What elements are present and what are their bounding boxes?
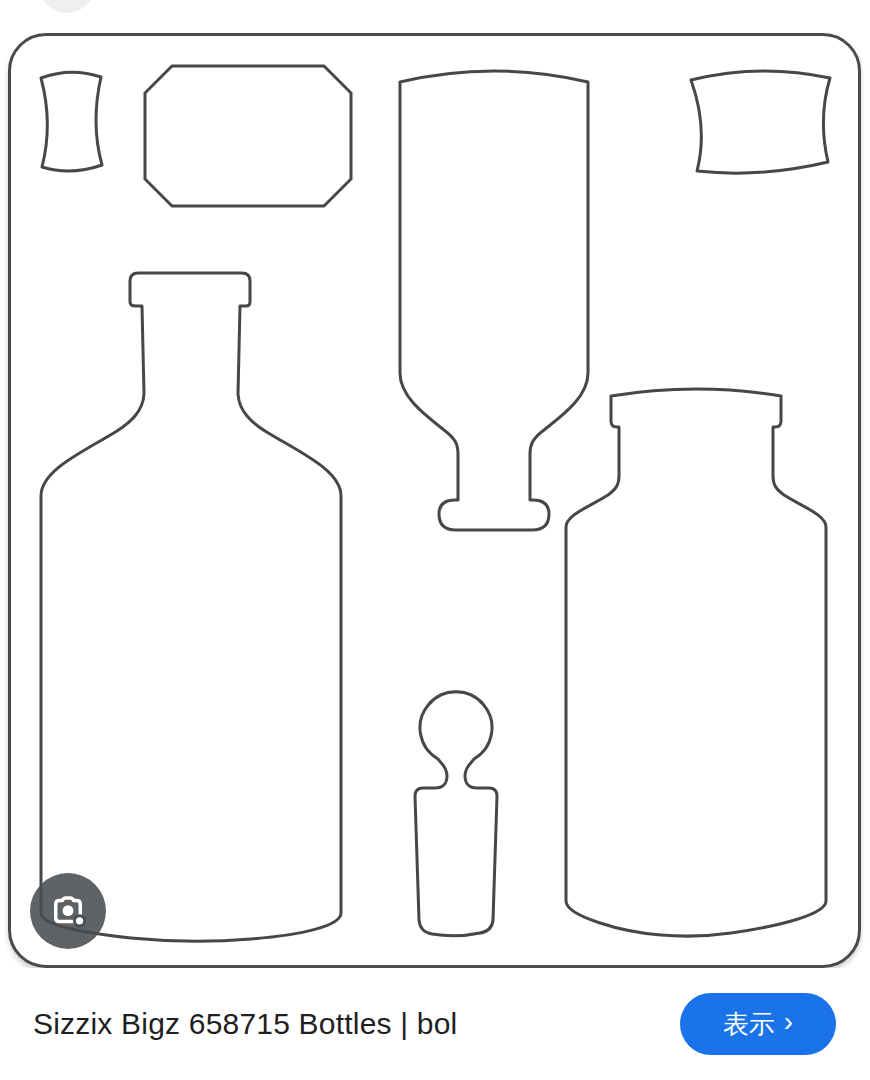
- result-image-card[interactable]: [8, 33, 861, 968]
- google-lens-button[interactable]: [30, 873, 106, 949]
- scroll-chip-remnant: [38, 0, 96, 13]
- visit-button-label: 表示: [723, 1007, 775, 1042]
- google-lens-camera-icon: [47, 890, 89, 932]
- die-shape-large-bottle: [41, 273, 341, 941]
- result-footer: Sizzix Bigz 658715 Bottles | bol 表示 ›: [0, 968, 870, 1080]
- die-shape-small-cork: [41, 72, 102, 171]
- result-title[interactable]: Sizzix Bigz 658715 Bottles | bol: [33, 1007, 457, 1041]
- die-shape-wide-cork: [691, 71, 830, 173]
- chevron-right-icon: ›: [784, 1008, 793, 1036]
- die-shape-ball-stopper: [415, 692, 497, 936]
- visit-button[interactable]: 表示 ›: [680, 993, 836, 1055]
- die-cut-bottles-drawing: [11, 36, 858, 965]
- die-shape-octagon-label: [145, 66, 351, 206]
- die-shape-inverted-bottle: [400, 71, 588, 530]
- die-shape-square-jar: [566, 389, 826, 936]
